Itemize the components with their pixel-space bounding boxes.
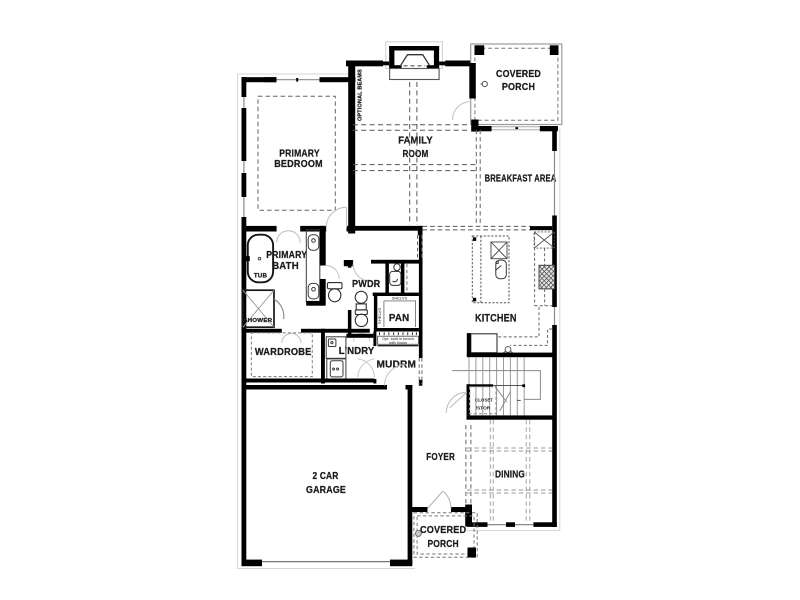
svg-text:with hooks: with hooks [389,341,407,345]
svg-text:2 CAR: 2 CAR [313,470,339,482]
svg-text:FOYER: FOYER [426,452,455,463]
svg-text:WARDROBE: WARDROBE [255,347,312,358]
svg-text:/STOR: /STOR [476,406,491,411]
svg-text:SHOWER: SHOWER [243,318,272,324]
svg-text:ROOM: ROOM [403,148,429,160]
svg-text:MUDRM: MUDRM [376,358,416,370]
svg-text:BEDROOM: BEDROOM [274,159,323,170]
svg-text:OPTIONAL BEAMS: OPTIONAL BEAMS [358,69,364,121]
svg-text:PWDR: PWDR [352,278,381,290]
svg-text:PAN: PAN [389,312,410,324]
svg-text:SHELVS: SHELVS [392,296,408,301]
svg-text:COVERED: COVERED [420,525,467,536]
svg-text:PORCH: PORCH [427,539,458,550]
svg-text:TUB: TUB [254,273,268,280]
svg-text:PORCH: PORCH [502,82,535,93]
svg-text:CLOSET: CLOSET [475,397,493,402]
svg-text:BATH: BATH [272,261,299,272]
svg-text:COVERED: COVERED [496,69,541,80]
svg-text:PRIMARY: PRIMARY [279,149,320,160]
svg-text:DINING: DINING [495,470,525,481]
svg-text:FAMILY: FAMILY [398,135,433,147]
svg-text:GARAGE: GARAGE [306,484,346,496]
svg-text:SHELVS: SHELVS [377,307,382,324]
svg-text:KITCHEN: KITCHEN [475,312,517,324]
svg-text:L'NDRY: L'NDRY [339,346,375,357]
svg-text:BREAKFAST AREA: BREAKFAST AREA [485,173,557,184]
